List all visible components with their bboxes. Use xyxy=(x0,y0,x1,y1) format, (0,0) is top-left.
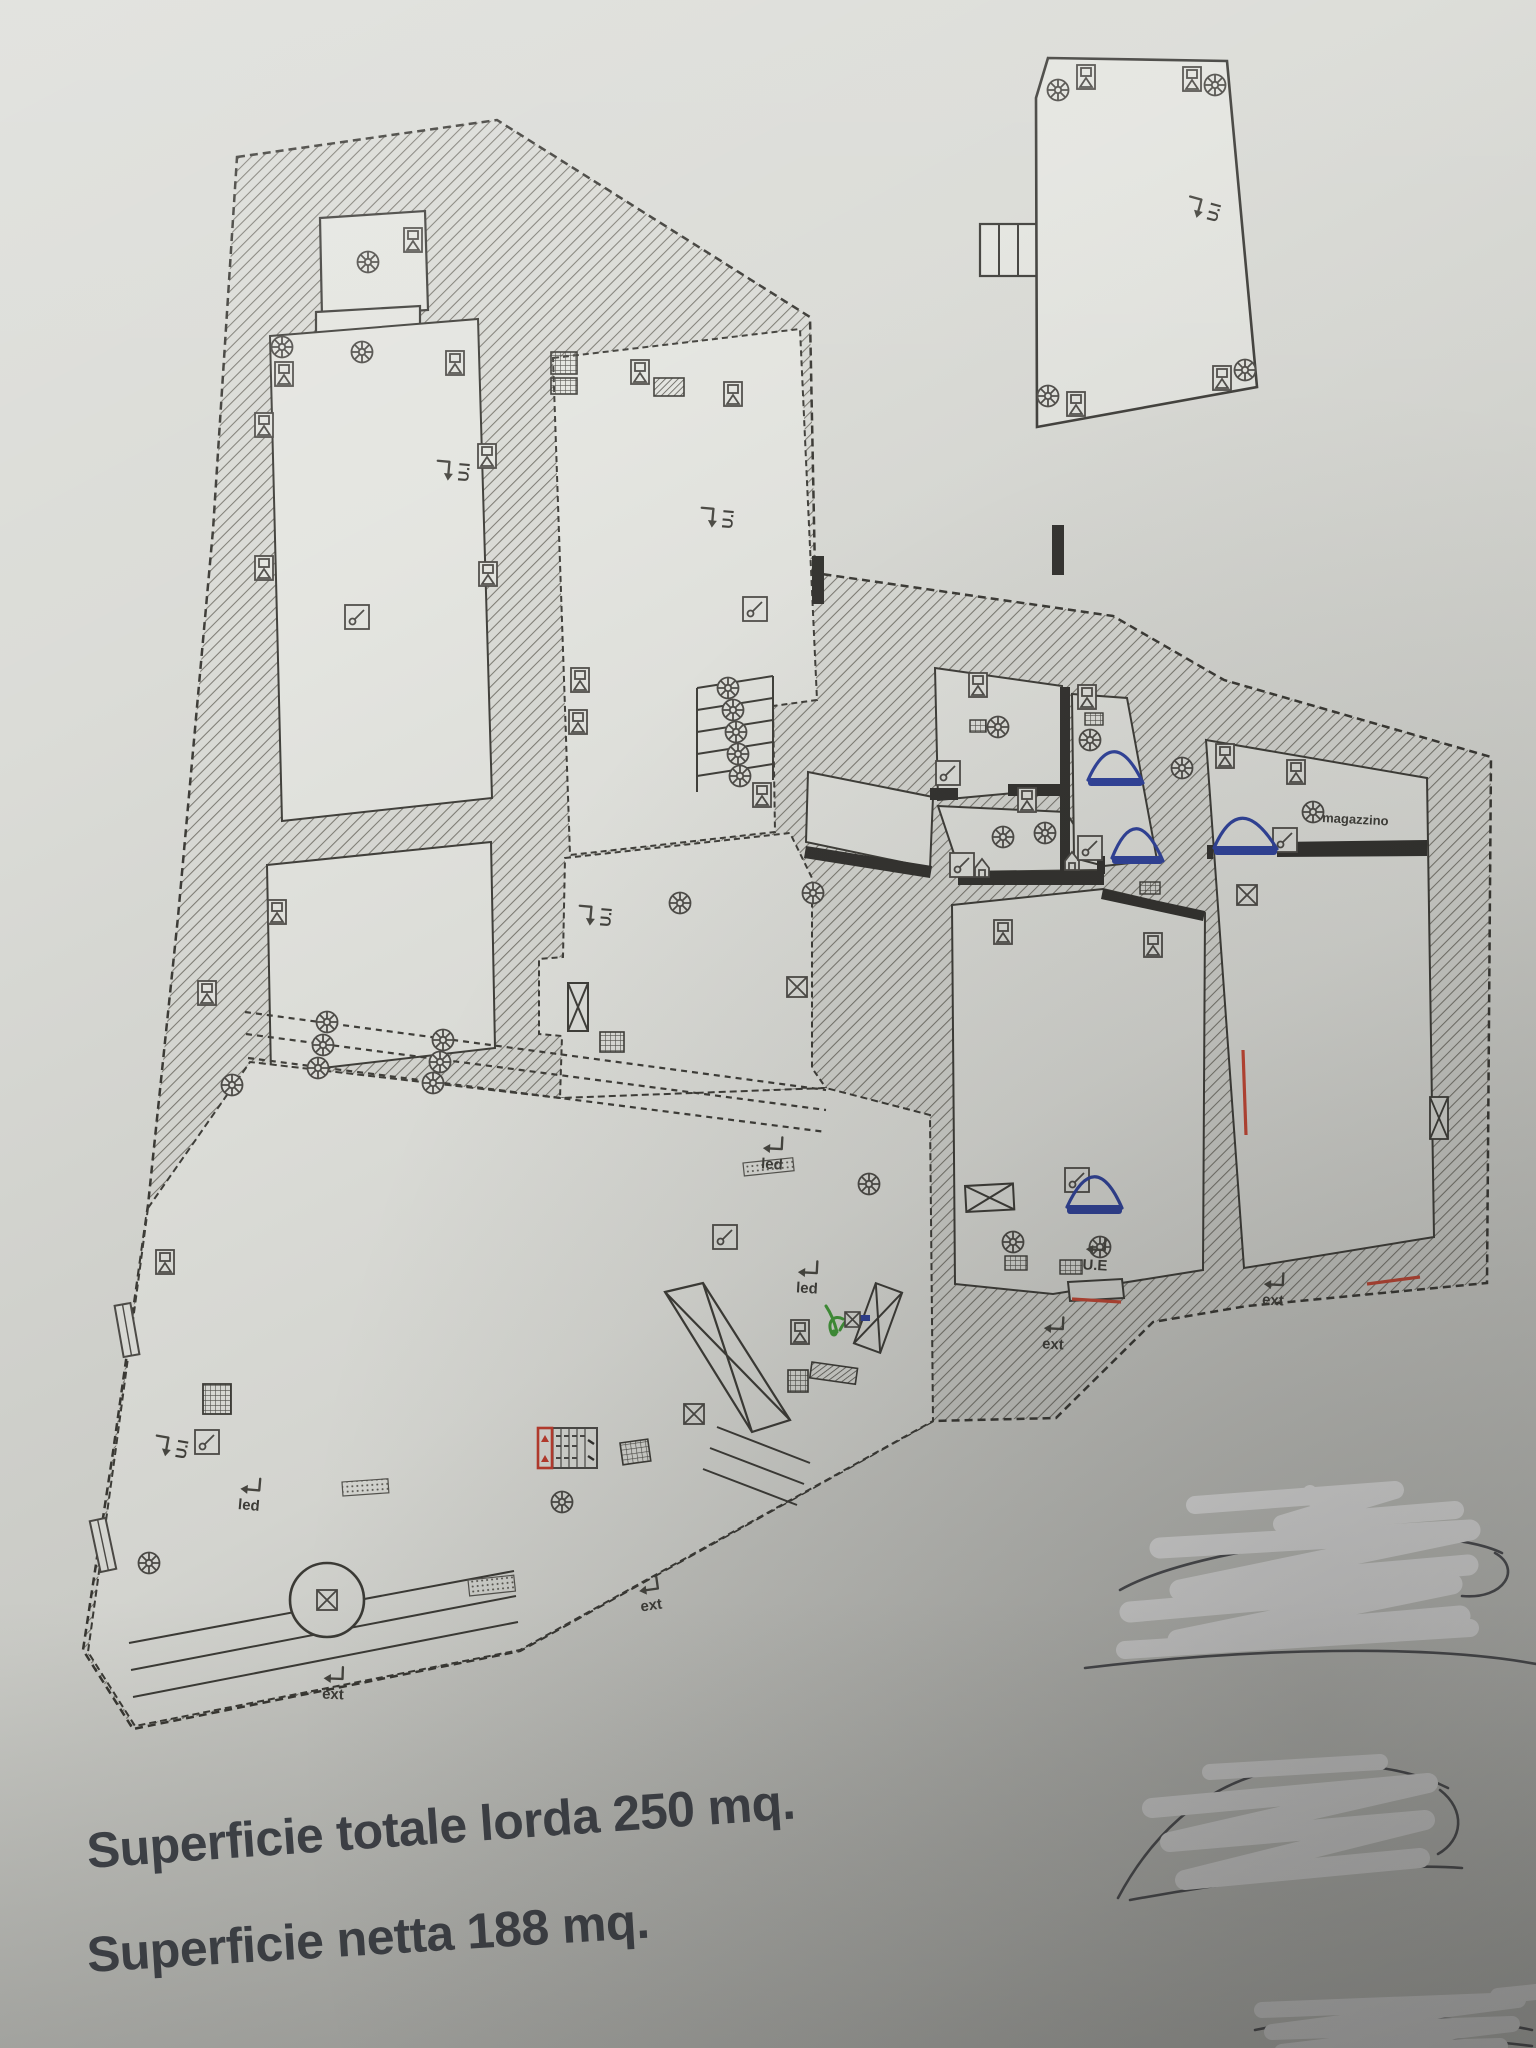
label-ext: ext xyxy=(322,1686,344,1704)
room-a2 xyxy=(267,842,495,1074)
label-ext: ext xyxy=(1262,1291,1285,1309)
room-a1 xyxy=(270,319,492,821)
label-ue: U.E xyxy=(1082,1256,1108,1274)
plant-box xyxy=(845,1312,860,1327)
label-ext: ext xyxy=(639,1596,663,1616)
floor-plan-photo: U.I U.I U.I U.I U.I U.E led led led ext … xyxy=(0,0,1536,2048)
room-c xyxy=(539,833,826,1100)
room-h xyxy=(952,889,1205,1294)
label-led: led xyxy=(237,1496,260,1515)
label-led: led xyxy=(796,1279,819,1297)
label-ui: U.I xyxy=(455,462,474,483)
label-ui: U.I xyxy=(719,509,738,530)
label-ext: ext xyxy=(1042,1335,1065,1353)
label-ui: U.I xyxy=(172,1438,192,1460)
floor-plan-drawing: U.I U.I U.I U.I U.I U.E led led led ext … xyxy=(0,0,1536,2048)
label-ui: U.I xyxy=(597,907,616,928)
red-radiator xyxy=(538,1428,597,1468)
label-led: led xyxy=(761,1155,784,1173)
